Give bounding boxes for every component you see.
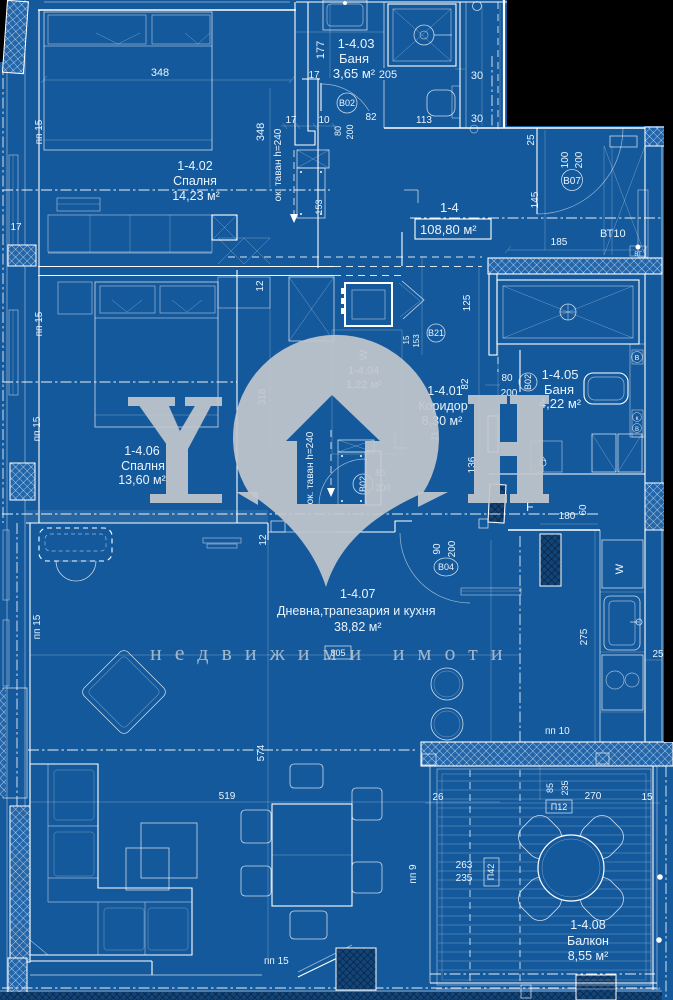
- svg-text:П42: П42: [486, 864, 496, 880]
- svg-text:Дневна,трапезария и кухня: Дневна,трапезария и кухня: [277, 604, 435, 618]
- svg-text:82: 82: [365, 112, 377, 123]
- svg-text:1-4.07: 1-4.07: [340, 587, 375, 601]
- svg-text:П12: П12: [551, 802, 567, 812]
- svg-text:15: 15: [402, 335, 411, 344]
- svg-text:Баня: Баня: [544, 382, 574, 397]
- svg-text:Спалня: Спалня: [121, 459, 165, 473]
- svg-text:185: 185: [551, 237, 568, 248]
- svg-text:пп 15: пп 15: [264, 956, 289, 967]
- svg-text:25: 25: [652, 649, 664, 660]
- svg-text:25: 25: [526, 134, 537, 146]
- svg-text:519: 519: [219, 791, 236, 802]
- svg-text:1-4.01: 1-4.01: [427, 384, 462, 398]
- svg-text:к: к: [636, 416, 639, 422]
- svg-text:пп 15: пп 15: [34, 311, 45, 336]
- svg-text:235: 235: [560, 780, 570, 795]
- svg-text:Баня: Баня: [339, 51, 369, 66]
- svg-text:235: 235: [456, 873, 473, 884]
- svg-text:26: 26: [432, 792, 444, 803]
- svg-text:пп 9: пп 9: [408, 864, 419, 884]
- svg-text:пп 15: пп 15: [32, 416, 43, 441]
- svg-text:12: 12: [255, 280, 266, 292]
- svg-text:270: 270: [585, 791, 602, 802]
- svg-text:145: 145: [530, 191, 541, 208]
- svg-text:574: 574: [256, 744, 267, 761]
- svg-text:пп 15: пп 15: [32, 614, 43, 639]
- svg-text:200: 200: [447, 540, 458, 557]
- svg-text:недвижими имоти: недвижими имоти: [150, 640, 516, 665]
- svg-text:38,82 м²: 38,82 м²: [334, 620, 382, 634]
- svg-text:B07: B07: [563, 176, 581, 187]
- svg-text:90: 90: [432, 543, 443, 555]
- svg-text:пп 15: пп 15: [34, 119, 45, 144]
- svg-text:100: 100: [560, 151, 571, 168]
- svg-text:8,55 м²: 8,55 м²: [568, 949, 609, 963]
- svg-text:113: 113: [416, 115, 432, 126]
- svg-text:108,80 м²: 108,80 м²: [420, 222, 477, 237]
- svg-text:пп 10: пп 10: [545, 726, 570, 737]
- svg-text:3,65 м²: 3,65 м²: [333, 66, 376, 81]
- svg-text:82: 82: [460, 378, 471, 390]
- svg-text:200: 200: [345, 124, 355, 139]
- svg-text:B02: B02: [523, 374, 533, 390]
- svg-text:263: 263: [456, 860, 473, 871]
- svg-text:1-4.03: 1-4.03: [338, 36, 375, 51]
- svg-text:1-4.02: 1-4.02: [177, 159, 212, 173]
- svg-text:125: 125: [462, 294, 473, 311]
- svg-text:В: В: [635, 355, 640, 362]
- svg-text:1-4.05: 1-4.05: [542, 367, 579, 382]
- svg-text:348: 348: [151, 67, 169, 79]
- svg-text:200: 200: [574, 151, 585, 168]
- svg-text:177: 177: [315, 41, 327, 59]
- svg-text:60: 60: [578, 504, 589, 516]
- svg-text:17: 17: [10, 222, 22, 233]
- svg-text:275: 275: [579, 628, 590, 645]
- svg-text:15: 15: [641, 792, 653, 803]
- svg-text:1-4.08: 1-4.08: [570, 918, 605, 932]
- svg-text:205: 205: [379, 69, 397, 81]
- svg-text:80: 80: [501, 373, 513, 384]
- svg-text:ок. таван h=240: ок. таван h=240: [305, 431, 316, 504]
- svg-text:30: 30: [471, 113, 483, 125]
- svg-text:153: 153: [314, 199, 324, 214]
- svg-text:ВТ10: ВТ10: [600, 228, 626, 240]
- svg-text:348: 348: [255, 123, 267, 141]
- svg-text:153: 153: [412, 334, 421, 348]
- svg-text:14,23 м²: 14,23 м²: [172, 189, 220, 203]
- svg-text:W: W: [614, 563, 626, 574]
- svg-text:30: 30: [471, 70, 483, 82]
- svg-text:80: 80: [333, 126, 343, 136]
- svg-text:B02: B02: [339, 98, 355, 108]
- svg-text:Спалня: Спалня: [173, 174, 217, 188]
- svg-text:В: В: [635, 427, 639, 433]
- svg-text:B21: B21: [428, 328, 444, 338]
- svg-text:Балкон: Балкон: [567, 934, 609, 948]
- svg-text:10: 10: [318, 115, 330, 126]
- svg-text:85: 85: [545, 783, 555, 793]
- svg-text:ок. таван h=240: ок. таван h=240: [273, 128, 284, 201]
- svg-text:1-4.06: 1-4.06: [124, 444, 159, 458]
- svg-text:17: 17: [308, 70, 320, 81]
- svg-text:ВТ: ВТ: [634, 252, 642, 258]
- svg-text:1-4: 1-4: [440, 200, 459, 215]
- svg-text:17: 17: [285, 115, 297, 126]
- svg-text:12: 12: [258, 534, 269, 546]
- svg-text:180: 180: [559, 511, 576, 522]
- svg-text:B04: B04: [438, 562, 454, 572]
- svg-text:13,60 м²: 13,60 м²: [118, 473, 166, 487]
